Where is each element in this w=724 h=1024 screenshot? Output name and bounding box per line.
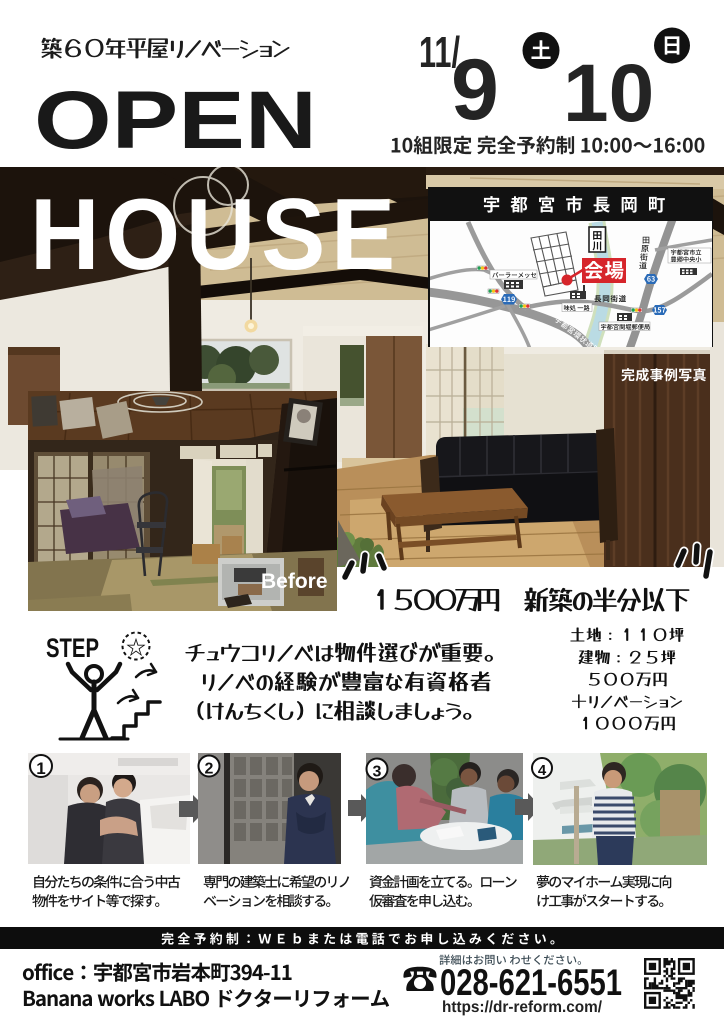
svg-text:Before: Before [261, 570, 328, 593]
svg-text:HOUSE: HOUSE [30, 179, 401, 291]
svg-text:STEP: STEP [46, 633, 99, 663]
svg-text:OPEN: OPEN [34, 75, 317, 166]
svg-text:10: 10 [563, 48, 654, 139]
svg-text:028-621-6551: 028-621-6551 [440, 962, 622, 1003]
svg-text:3: 3 [373, 764, 382, 781]
svg-text:2: 2 [205, 761, 214, 778]
svg-text:1: 1 [36, 759, 45, 778]
svg-text:9: 9 [451, 42, 499, 138]
svg-text:4: 4 [538, 762, 547, 779]
